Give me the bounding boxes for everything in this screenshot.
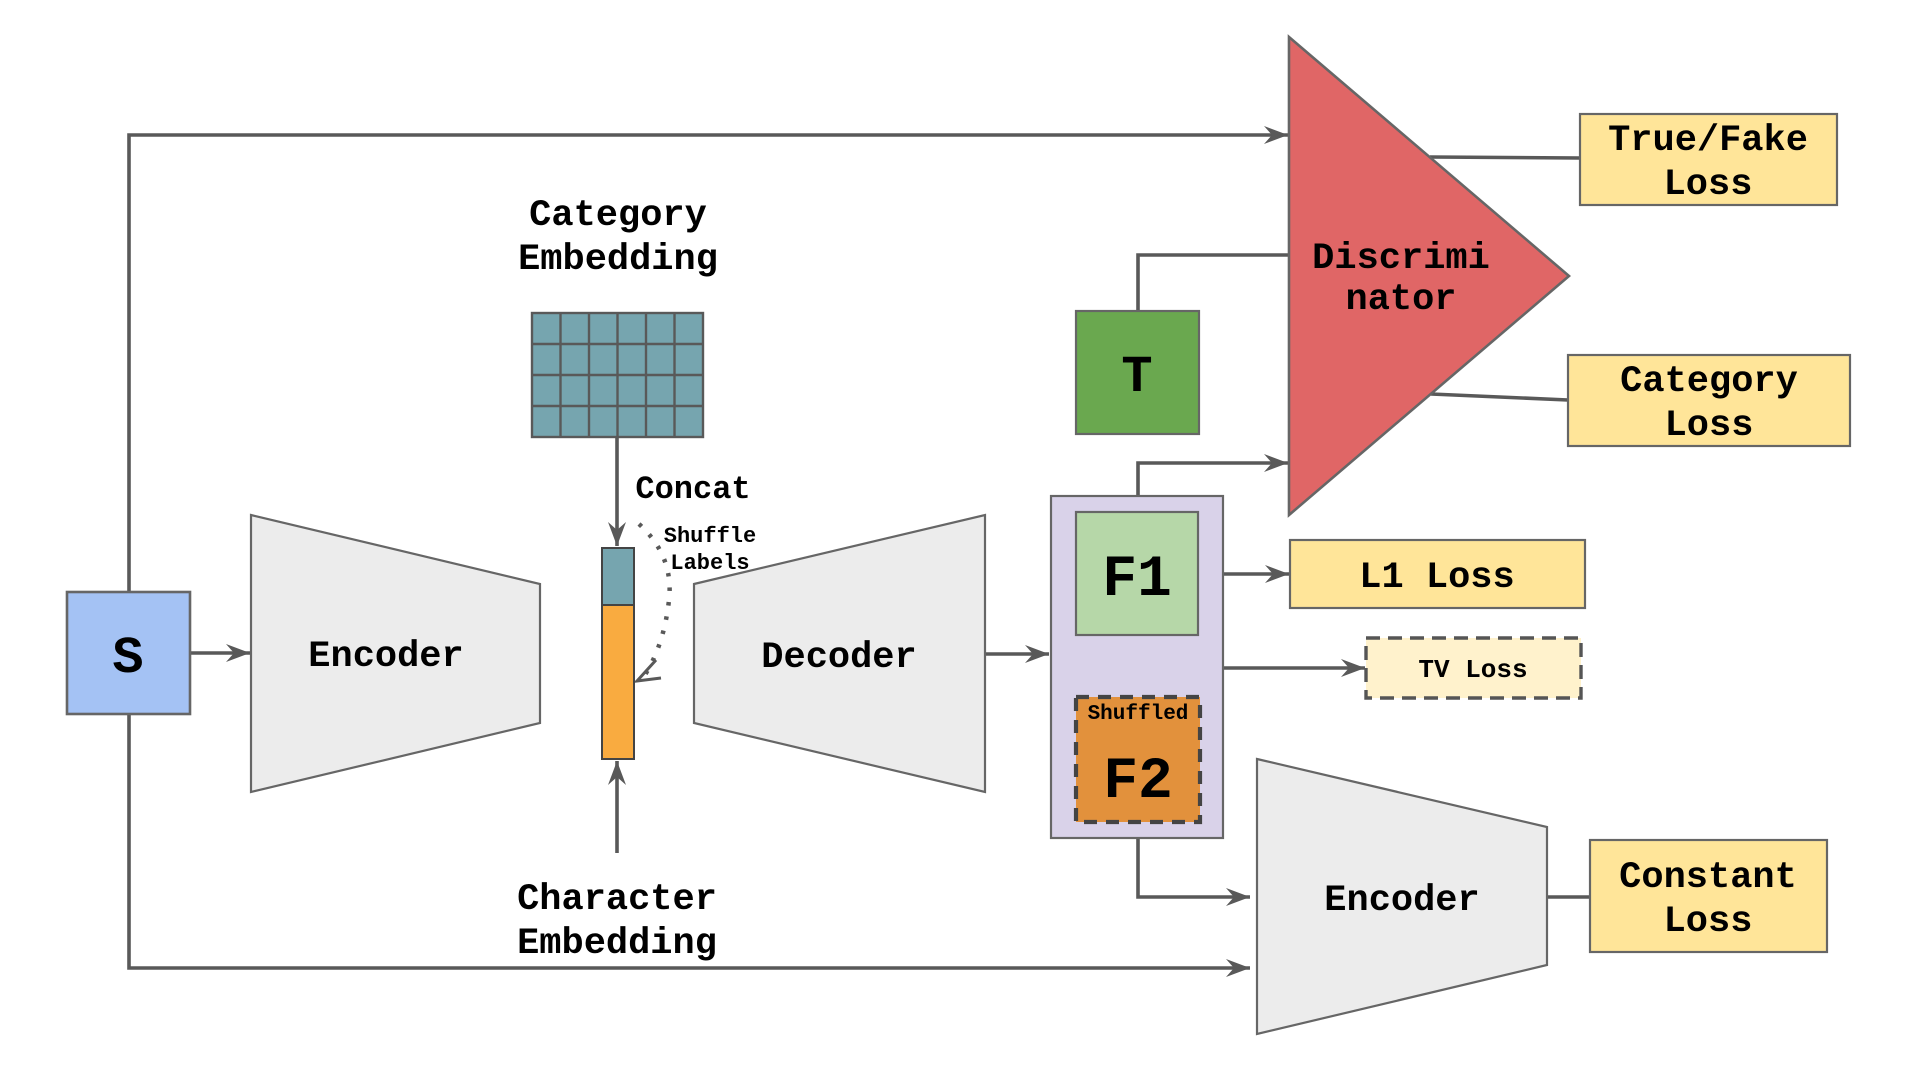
svg-text:Shuffled: Shuffled	[1088, 703, 1189, 726]
svg-text:L1 Loss: L1 Loss	[1359, 557, 1514, 599]
svg-text:Encoder: Encoder	[1324, 880, 1479, 922]
svg-text:True/Fake: True/Fake	[1608, 120, 1808, 162]
svg-text:Decoder: Decoder	[761, 637, 916, 679]
svg-text:Loss: Loss	[1664, 164, 1753, 206]
svg-text:F2: F2	[1103, 750, 1173, 815]
svg-text:F1: F1	[1102, 548, 1172, 613]
svg-text:Shuffle: Shuffle	[664, 524, 756, 549]
svg-text:Loss: Loss	[1665, 405, 1754, 447]
svg-text:S: S	[112, 629, 143, 688]
svg-text:Discrimi: Discrimi	[1312, 238, 1490, 280]
svg-text:Loss: Loss	[1664, 901, 1753, 943]
svg-text:Category: Category	[1620, 361, 1798, 403]
svg-text:Embedding: Embedding	[518, 239, 718, 281]
svg-text:Encoder: Encoder	[308, 636, 463, 678]
svg-text:Category: Category	[529, 195, 707, 237]
svg-text:Concat: Concat	[635, 471, 750, 508]
svg-text:nator: nator	[1345, 279, 1456, 321]
svg-text:Labels: Labels	[670, 551, 749, 576]
svg-text:Embedding: Embedding	[517, 923, 717, 965]
svg-text:T: T	[1121, 348, 1152, 407]
svg-text:Constant: Constant	[1619, 857, 1797, 899]
svg-text:TV Loss: TV Loss	[1418, 655, 1527, 685]
svg-text:Character: Character	[517, 879, 717, 921]
